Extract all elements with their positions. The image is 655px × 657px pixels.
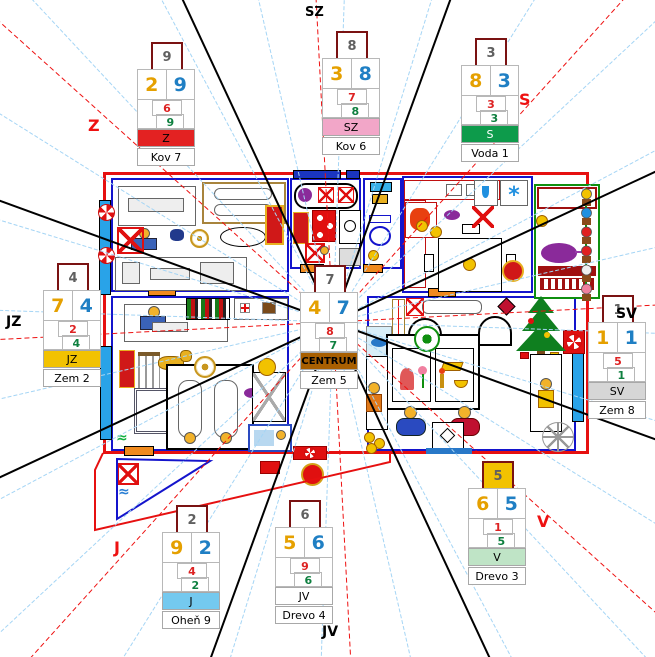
compass-label-s: S [519,90,531,109]
grid-red-row: 9 [276,558,332,572]
flower-pot-icon [582,218,591,225]
grid-direction-bar: Z [137,129,195,147]
grid-red-row: 6 [138,100,194,114]
grid-green-row: 4 [44,335,100,349]
grid-main-box: 6515 [468,488,526,548]
grid-right-number: 9 [166,70,195,99]
flower-icon [582,246,592,256]
grid-right-number: 5 [497,489,526,518]
grid-right-number: 8 [351,59,380,88]
flower-pot-icon [582,237,591,244]
grid-red-row: 3 [462,96,518,110]
grid-red-row: 4 [163,563,219,577]
grid-main-box: 8333 [461,65,519,125]
grid-red-row: 1 [469,519,525,533]
flower-pot-icon [582,256,591,263]
grid-direction-bar: SZ [322,118,380,136]
flower-icon [582,227,592,237]
terrace-outline-red [95,452,390,530]
grid-direction-bar: CENTRUM [300,352,358,370]
grid-red-row: 2 [44,321,100,335]
grid-main-box: 2969 [137,69,195,129]
grid-main-box: 9242 [162,532,220,592]
grid-element-label: Kov 6 [322,137,380,155]
flower-icon [582,265,592,275]
grid-green-row: 2 [163,577,219,591]
grid-main-box: 1151 [588,322,646,382]
compass-label-v: V [537,512,549,531]
compass-label-jz: JZ [6,314,21,330]
grid-main-box: 5696 [275,527,333,587]
grid-big-numbers: 38 [323,59,379,89]
compass-label-j: J [114,538,120,557]
grid-element-label: Zem 8 [588,401,646,419]
grid-green-row: 5 [469,533,525,547]
grid-red-row: 5 [589,353,645,367]
grid-big-numbers: 92 [163,533,219,563]
compass-ray [89,0,333,322]
grid-element-label: Kov 7 [137,148,195,166]
grid-big-numbers: 47 [301,293,357,323]
grid-left-number: 9 [163,533,191,562]
grid-left-number: 1 [589,323,617,352]
grid-big-numbers: 11 [589,323,645,353]
grid-green-number: 3 [480,110,508,126]
grid-big-numbers: 56 [276,528,332,558]
compass-label-z: Z [88,116,100,135]
grid-element-label: Oheň 9 [162,611,220,629]
grid-element-label: Drevo 3 [468,567,526,585]
grid-green-row: 6 [276,572,332,586]
grid-green-number: 2 [181,577,209,593]
grid-green-row: 7 [301,337,357,351]
grid-right-number: 1 [617,323,646,352]
grid-green-row: 8 [323,103,379,117]
grid-green-number: 5 [487,533,515,549]
compass-ray [333,322,577,657]
grid-right-number: 7 [329,293,358,322]
grid-element-label: Voda 1 [461,144,519,162]
grid-big-numbers: 83 [462,66,518,96]
flower-icon [582,284,592,294]
grid-big-numbers: 65 [469,489,525,519]
flower-pot-icon [582,294,591,301]
grid-direction-bar: V [468,548,526,566]
grid-direction-bar: JV [275,587,333,605]
grid-green-row: 3 [462,110,518,124]
grid-left-number: 4 [301,293,329,322]
compass-label-sv: SV [616,306,637,322]
grid-direction-bar: J [162,592,220,610]
grid-red-row: 7 [323,89,379,103]
grid-green-number: 8 [341,103,369,119]
grid-main-box: 3878 [322,58,380,118]
grid-green-number: 1 [607,367,635,383]
compass-label-sz: SZ [305,5,324,20]
grid-right-number: 2 [191,533,220,562]
flower-pot-icon [582,275,591,282]
grid-element-label: Zem 2 [43,369,101,387]
grid-big-numbers: 74 [44,291,100,321]
grid-big-numbers: 29 [138,70,194,100]
grid-left-number: 2 [138,70,166,99]
grid-left-number: 7 [44,291,72,320]
grid-green-number: 9 [156,114,184,130]
grid-direction-bar: S [461,125,519,143]
grid-left-number: 5 [276,528,304,557]
grid-element-label: Drevo 4 [275,606,333,624]
grid-right-number: 4 [72,291,101,320]
grid-green-row: 9 [138,114,194,128]
grid-element-label: Zem 5 [300,371,358,389]
grid-direction-bar: JZ [43,350,101,368]
flower-icon [582,189,592,199]
grid-right-number: 3 [490,66,519,95]
grid-left-number: 6 [469,489,497,518]
grid-main-box: 7424 [43,290,101,350]
grid-green-number: 6 [294,572,322,588]
grid-red-row: 8 [301,323,357,337]
flower-icon [582,208,592,218]
grid-main-box: 4787 [300,292,358,352]
grid-left-number: 3 [323,59,351,88]
grid-direction-bar: SV [588,382,646,400]
grid-green-row: 1 [589,367,645,381]
grid-green-number: 7 [319,337,347,353]
grid-left-number: 8 [462,66,490,95]
compass-label-jv: JV [322,624,338,640]
grid-green-number: 4 [62,335,90,351]
grid-right-number: 6 [304,528,333,557]
fengshui-floorplan-canvas: ≈ * [0,0,655,657]
